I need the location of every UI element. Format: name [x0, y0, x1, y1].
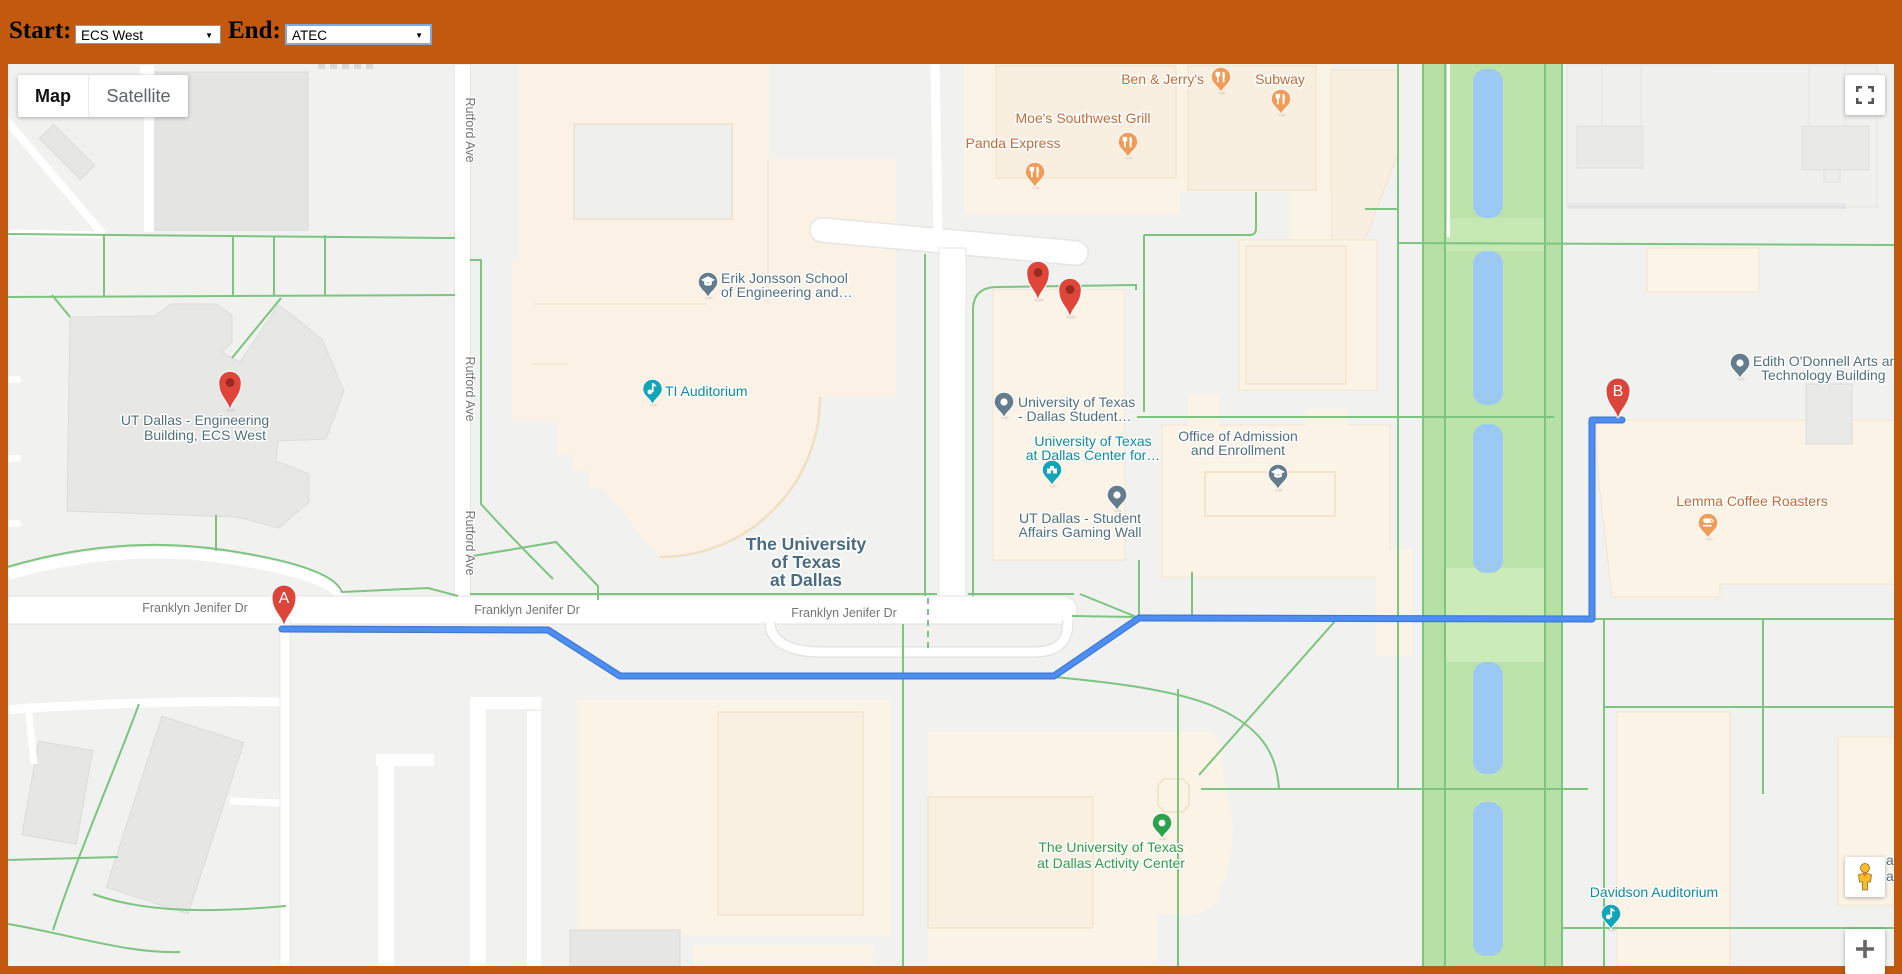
svg-text:ar: ar — [1886, 868, 1894, 884]
svg-text:UT Dallas - Engineering: UT Dallas - Engineering — [121, 412, 269, 428]
svg-text:Franklyn Jenifer Dr: Franklyn Jenifer Dr — [142, 601, 248, 615]
svg-text:A: A — [279, 590, 290, 607]
svg-text:av: av — [1886, 852, 1894, 868]
svg-text:Rutford Ave: Rutford Ave — [463, 510, 477, 575]
svg-text:Lemma Coffee Roasters: Lemma Coffee Roasters — [1676, 493, 1827, 509]
svg-text:Rutford Ave: Rutford Ave — [463, 97, 477, 162]
svg-text:Technology Building: Technology Building — [1761, 367, 1886, 383]
svg-text:Building, ECS West: Building, ECS West — [144, 427, 266, 443]
svg-text:Rutford Ave: Rutford Ave — [463, 356, 477, 421]
svg-text:Panda Express: Panda Express — [966, 135, 1061, 151]
svg-text:TI Auditorium: TI Auditorium — [665, 383, 747, 399]
svg-text:at Dallas Center for…: at Dallas Center for… — [1026, 447, 1161, 463]
svg-text:of Texas: of Texas — [771, 552, 841, 572]
svg-text:at Dallas: at Dallas — [770, 570, 842, 590]
svg-text:of Engineering and…: of Engineering and… — [721, 284, 853, 300]
svg-text:B: B — [1613, 383, 1624, 400]
svg-text:The University: The University — [746, 534, 867, 554]
svg-text:Moe's Southwest Grill: Moe's Southwest Grill — [1016, 110, 1151, 126]
svg-text:Subway: Subway — [1255, 71, 1305, 87]
svg-text:- Dallas Student…: - Dallas Student… — [1018, 408, 1132, 424]
svg-text:Franklyn Jenifer Dr: Franklyn Jenifer Dr — [791, 606, 897, 620]
svg-text:The University of Texas: The University of Texas — [1038, 839, 1183, 855]
svg-text:at Dallas Activity Center: at Dallas Activity Center — [1037, 855, 1185, 871]
svg-text:Ben & Jerry's: Ben & Jerry's — [1121, 71, 1204, 87]
svg-text:and Enrollment: and Enrollment — [1191, 442, 1285, 458]
svg-text:Affairs Gaming Wall: Affairs Gaming Wall — [1019, 524, 1142, 540]
svg-text:Franklyn Jenifer Dr: Franklyn Jenifer Dr — [474, 603, 580, 617]
svg-text:Davidson Auditorium: Davidson Auditorium — [1590, 884, 1718, 900]
